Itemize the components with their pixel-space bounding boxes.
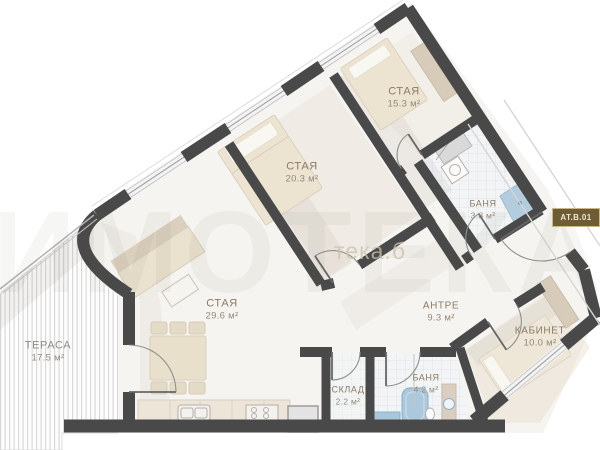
room-label-bedroom-mid: СТАЯ 20.3 м² bbox=[286, 160, 319, 187]
floor-plan-drawing bbox=[0, 0, 600, 450]
room-label-office: КАБИНЕТ 10.0 м² bbox=[515, 324, 565, 349]
room-label-bath-top: БАНЯ 3.8 м² bbox=[469, 199, 496, 222]
room-label-terrace: ТЕРАСА 17.5 м² bbox=[25, 339, 71, 366]
room-label-bath-bottom: БАНЯ 4.2 м² bbox=[412, 373, 439, 396]
sink-icon bbox=[178, 405, 210, 421]
toilet-icon bbox=[426, 408, 435, 420]
floor-plan: ИМОТЕКА bbox=[0, 0, 600, 450]
unit-number-badge: АТ.В.01 bbox=[552, 208, 600, 227]
room-label-bedroom-top: СТАЯ 15.3 м² bbox=[388, 85, 421, 112]
room-label-hall: АНТРЕ 9.3 м² bbox=[423, 299, 459, 324]
room-label-storage: СКЛАД 2.2 м² bbox=[331, 385, 364, 408]
sink-icon bbox=[444, 399, 455, 410]
dining-table bbox=[150, 322, 206, 394]
stove-icon bbox=[246, 405, 278, 421]
room-label-living: СТАЯ 29.6 м² bbox=[206, 297, 239, 324]
